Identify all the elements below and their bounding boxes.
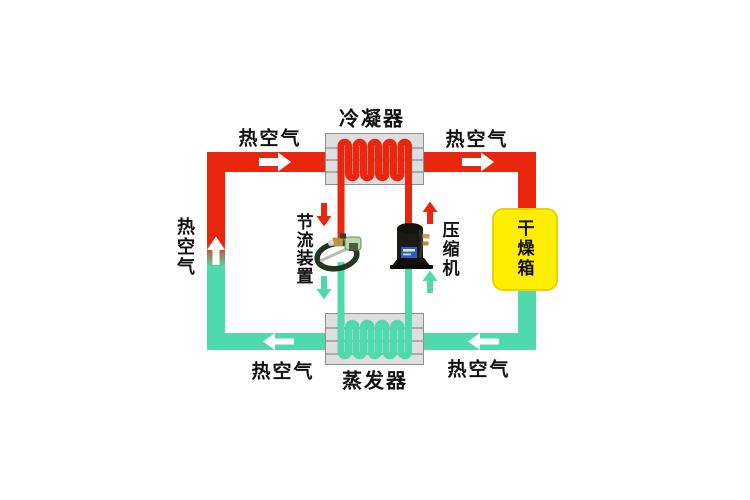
hot-air-label-top-left: 热空气 <box>238 124 301 151</box>
compressor-nameplate-text-line <box>403 249 415 252</box>
condenser-fin-line <box>326 159 423 161</box>
condenser-label: 冷凝器 <box>339 103 405 132</box>
arrow-down-teal-icon <box>317 276 332 300</box>
compressor-body <box>397 227 423 260</box>
throttle-valve-body <box>345 237 361 250</box>
duct-bottom-left-cold <box>207 333 325 350</box>
compressor <box>390 223 433 269</box>
drying-box-label: 干燥箱 <box>512 219 537 279</box>
arrow-up-teal-icon <box>423 271 438 294</box>
hot-air-label-left-vertical: 热空气 <box>172 217 198 277</box>
evaporator-fin-line <box>326 327 423 329</box>
compressor-port-upper <box>423 234 430 239</box>
arrow-up-red-icon <box>423 202 438 225</box>
compressor-port-lower <box>423 242 429 246</box>
diagram-overlay <box>0 0 750 500</box>
duct-out-of-dryer-cold <box>518 288 536 350</box>
compressor-body-highlight <box>420 230 422 258</box>
duct-left-vertical-gradient <box>207 152 225 350</box>
throttle-device <box>315 234 361 272</box>
throttle-valve-port <box>349 243 358 251</box>
compressor-dome-top <box>397 223 423 234</box>
compressor-label: 压缩机 <box>437 221 462 278</box>
evaporator-label: 蒸发器 <box>342 365 408 394</box>
arrow-down-red-icon <box>317 203 332 227</box>
throttle-brass-fitting <box>333 238 343 246</box>
hot-air-label-bottom-left: 热空气 <box>251 357 314 384</box>
throttle-capillary-tube <box>320 247 351 261</box>
throttle-fitting-nut <box>328 240 334 246</box>
compressor-nameplate-text-line <box>403 254 411 256</box>
condenser-box <box>325 133 424 185</box>
diagram-canvas: 冷凝器 蒸发器 热空气 热空气 热空气 热空气 热空气 节流装置 压缩机 干燥箱 <box>0 0 750 500</box>
compressor-base <box>391 258 431 267</box>
evaporator-box <box>325 313 424 365</box>
evaporator-fin-line <box>326 340 423 342</box>
compressor-nameplate <box>401 247 417 259</box>
hot-air-label-bottom-right: 热空气 <box>447 355 510 382</box>
throttle-device-label: 节流装置 <box>291 213 316 285</box>
hot-air-label-top-right: 热空气 <box>445 125 508 152</box>
condenser-fin-line <box>326 171 423 173</box>
throttle-coil-ring <box>315 240 359 272</box>
throttle-top-cap <box>340 234 346 239</box>
condenser-fin-line <box>326 147 423 149</box>
evaporator-fin-line <box>326 353 423 355</box>
duct-into-dryer-hot <box>518 152 536 210</box>
compressor-base-plate <box>390 265 433 269</box>
